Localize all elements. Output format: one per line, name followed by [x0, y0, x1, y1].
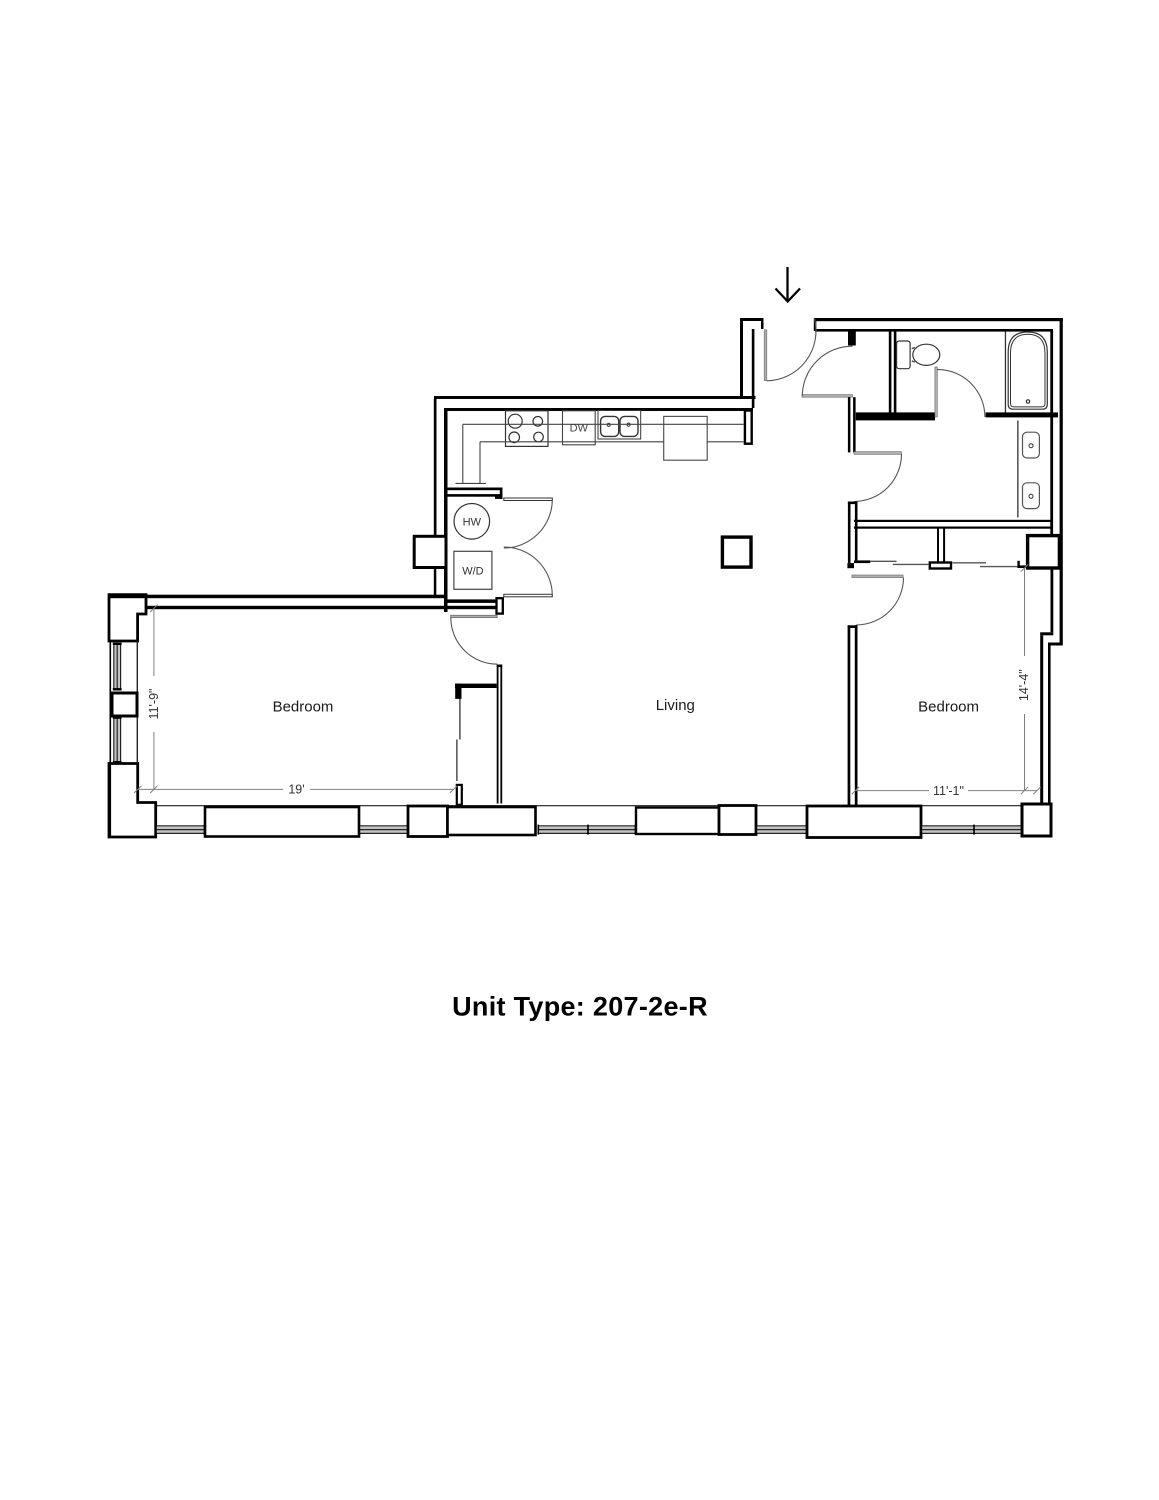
svg-text:Bedroom: Bedroom — [273, 699, 334, 716]
svg-text:11'-1": 11'-1" — [933, 784, 964, 798]
svg-text:19': 19' — [288, 783, 304, 797]
svg-text:11'-9": 11'-9" — [147, 689, 161, 720]
svg-text:W/D: W/D — [462, 565, 483, 577]
svg-text:14'-4": 14'-4" — [1017, 669, 1031, 701]
svg-text:Unit Type: 207-2e-R: Unit Type: 207-2e-R — [452, 992, 708, 1022]
svg-text:HW: HW — [463, 516, 482, 528]
svg-text:Bedroom: Bedroom — [918, 699, 979, 716]
svg-text:Living: Living — [656, 697, 695, 714]
